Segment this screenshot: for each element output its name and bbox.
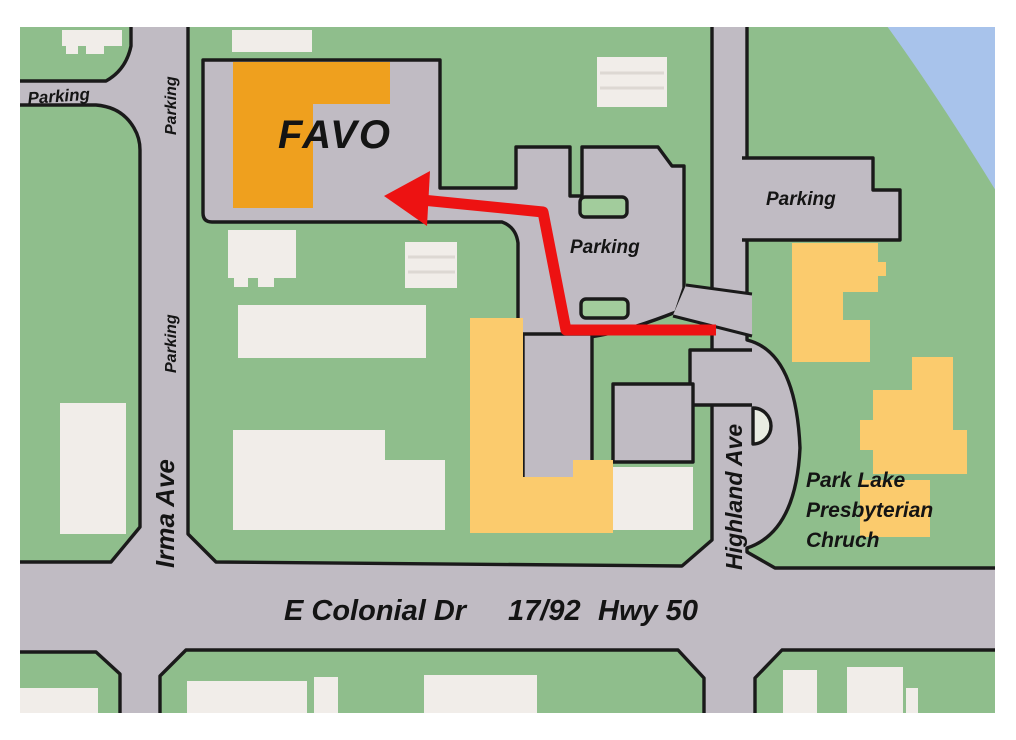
map-canvas: Parking Parking Parking Irma Ave Highlan… bbox=[0, 0, 1016, 740]
building bbox=[60, 403, 126, 534]
building bbox=[228, 230, 296, 278]
building bbox=[314, 677, 338, 713]
building bbox=[847, 667, 903, 713]
irma-ave-label: Irma Ave bbox=[150, 459, 180, 568]
parking-island-north bbox=[580, 197, 627, 217]
building bbox=[86, 46, 104, 54]
parking-label-irma-north: Parking bbox=[163, 76, 180, 135]
building bbox=[258, 278, 274, 287]
church-label-line3: Chruch bbox=[806, 529, 880, 552]
map-figure: Parking Parking Parking Irma Ave Highlan… bbox=[0, 0, 1016, 740]
building bbox=[238, 305, 426, 358]
building bbox=[405, 242, 457, 288]
favo-label: FAVO bbox=[278, 113, 392, 157]
office-building-tall bbox=[523, 334, 592, 481]
church-label-line1: Park Lake bbox=[806, 469, 906, 492]
building bbox=[62, 30, 122, 46]
building bbox=[232, 30, 312, 52]
building bbox=[66, 46, 78, 54]
colonial-dr-label: E Colonial Dr bbox=[284, 595, 468, 627]
building bbox=[597, 57, 667, 107]
parking-island-south bbox=[581, 299, 628, 318]
building-road-corridor bbox=[690, 350, 752, 405]
building bbox=[12, 688, 98, 713]
building bbox=[187, 681, 307, 713]
building bbox=[783, 670, 817, 713]
colonial-hwy-label: Hwy 50 bbox=[598, 595, 698, 627]
parking-label-irma-mid: Parking bbox=[163, 314, 180, 373]
building bbox=[613, 467, 693, 530]
church-label-line2: Presbyterian bbox=[806, 499, 933, 522]
building bbox=[234, 278, 248, 287]
map-clip-group: Parking Parking Parking Irma Ave Highlan… bbox=[12, 14, 1004, 726]
parking-label-central: Parking bbox=[570, 237, 640, 258]
colonial-route-label: 17/92 bbox=[508, 595, 581, 627]
office-building-square bbox=[613, 384, 693, 462]
highland-ave-label: Highland Ave bbox=[721, 424, 747, 570]
building bbox=[906, 688, 918, 713]
building bbox=[424, 675, 537, 713]
parking-label-east: Parking bbox=[766, 189, 836, 210]
